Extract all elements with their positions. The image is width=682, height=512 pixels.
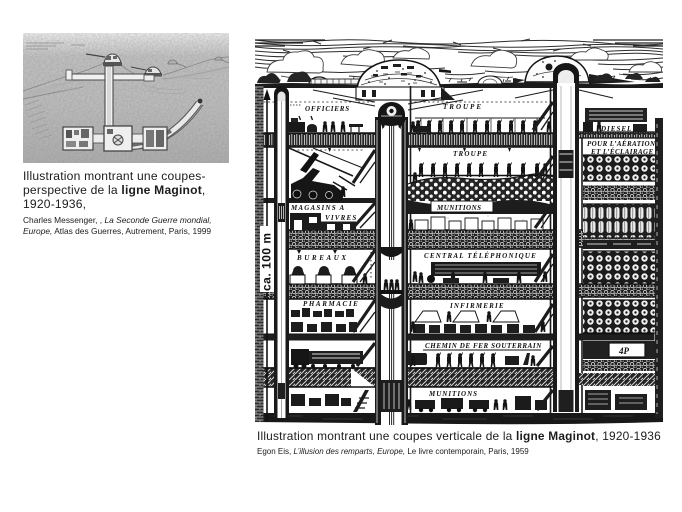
svg-text:POUR L’AÉRATION: POUR L’AÉRATION (587, 140, 656, 148)
svg-text:TROUPE: TROUPE (443, 103, 483, 111)
svg-text:PHARMACIE: PHARMACIE (303, 300, 359, 308)
svg-text:MUNITIONS: MUNITIONS (428, 390, 478, 398)
svg-text:ca. 100 m: ca. 100 m (260, 232, 274, 291)
svg-text:4P: 4P (618, 346, 630, 356)
svg-text:TROUPE: TROUPE (453, 150, 488, 158)
svg-text:MUNITIONS: MUNITIONS (436, 204, 482, 212)
svg-text:OFFICIERS: OFFICIERS (305, 105, 350, 113)
svg-text:VIVRES: VIVRES (325, 214, 358, 222)
svg-text:CENTRAL TÉLÉPHONIQUE: CENTRAL TÉLÉPHONIQUE (424, 252, 537, 260)
svg-text:DIESEL: DIESEL (600, 125, 632, 133)
svg-text:BUREAUX: BUREAUX (296, 254, 349, 262)
svg-text:CHEMIN DE FER SOUTERRAIN: CHEMIN DE FER SOUTERRAIN (425, 342, 542, 350)
svg-text:INFIRMERIE: INFIRMERIE (449, 302, 505, 310)
svg-text:MAGASINS A: MAGASINS A (290, 204, 345, 212)
